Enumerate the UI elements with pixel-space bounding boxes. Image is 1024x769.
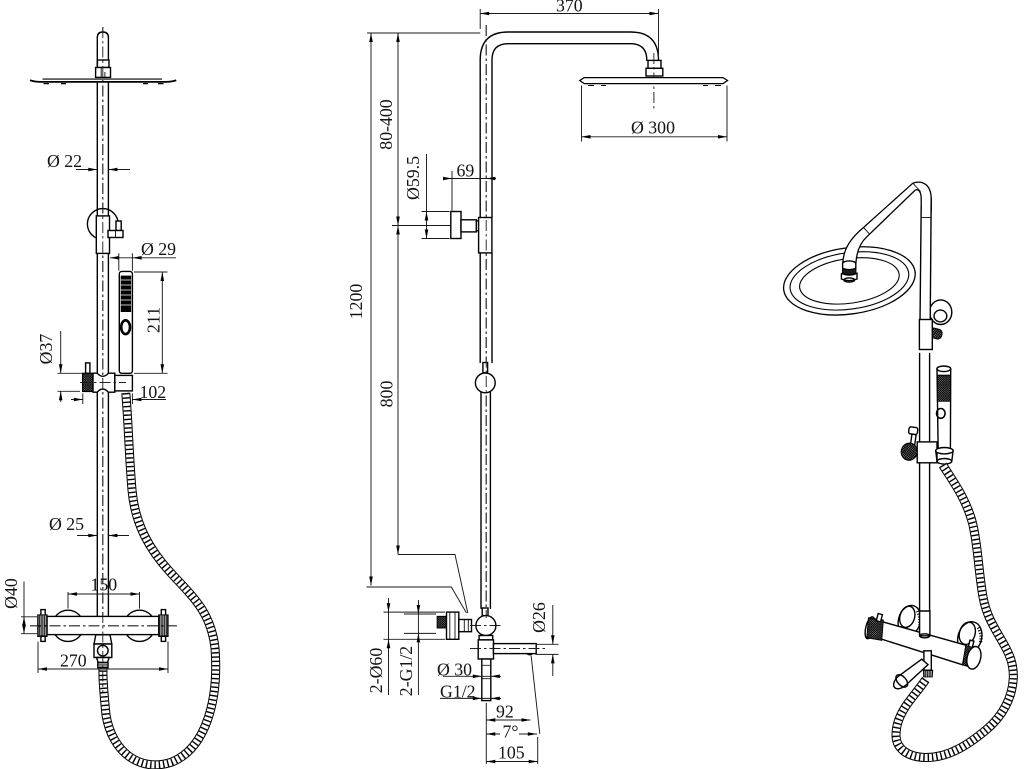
svg-text:105: 105 <box>498 743 525 763</box>
svg-text:Ø37: Ø37 <box>36 334 56 365</box>
svg-text:Ø59.5: Ø59.5 <box>403 156 423 200</box>
svg-text:150: 150 <box>91 575 118 595</box>
svg-text:Ø26: Ø26 <box>529 602 549 633</box>
svg-text:370: 370 <box>556 0 583 16</box>
svg-text:92: 92 <box>496 702 514 722</box>
svg-text:Ø 29: Ø 29 <box>141 239 176 259</box>
svg-text:80-400: 80-400 <box>376 99 396 149</box>
svg-text:800: 800 <box>377 381 397 408</box>
svg-text:Ø 300: Ø 300 <box>631 118 675 138</box>
svg-text:1200: 1200 <box>346 284 366 320</box>
svg-text:270: 270 <box>60 651 87 671</box>
svg-text:Ø 25: Ø 25 <box>49 514 84 534</box>
svg-text:7°: 7° <box>503 722 519 742</box>
svg-text:2-G1/2: 2-G1/2 <box>396 646 416 696</box>
svg-text:Ø40: Ø40 <box>1 578 21 609</box>
svg-text:69: 69 <box>457 161 475 181</box>
svg-text:102: 102 <box>140 382 167 402</box>
svg-text:2-Ø60: 2-Ø60 <box>366 648 386 694</box>
svg-text:Ø 22: Ø 22 <box>47 151 82 171</box>
svg-text:211: 211 <box>144 307 164 333</box>
